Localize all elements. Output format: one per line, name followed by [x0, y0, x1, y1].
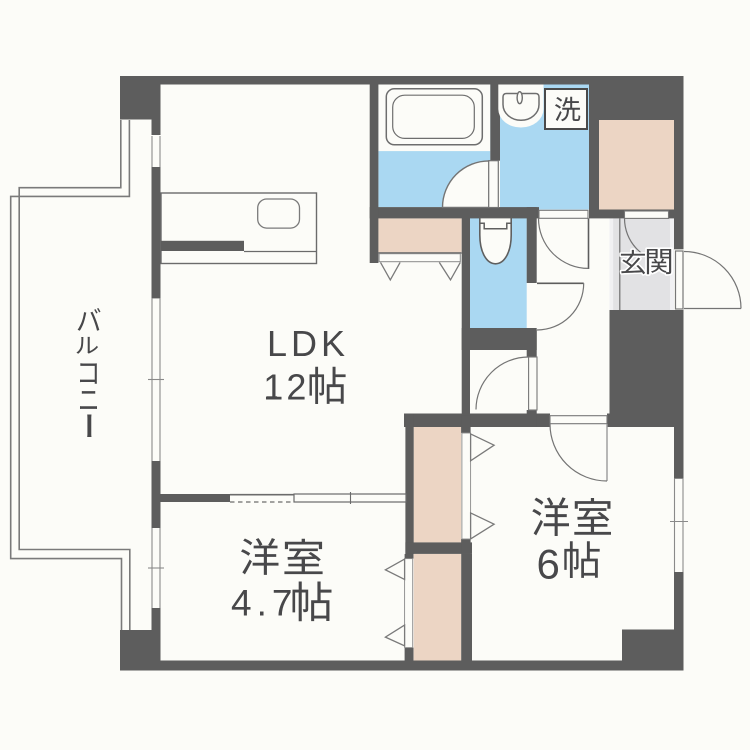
svg-text:6: 6	[537, 541, 560, 588]
svg-text:LDK: LDK	[267, 323, 349, 364]
svg-text:4.7: 4.7	[231, 583, 297, 624]
svg-text:12: 12	[263, 367, 309, 408]
